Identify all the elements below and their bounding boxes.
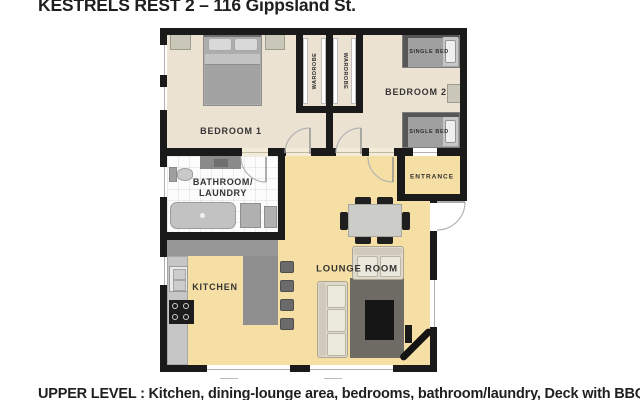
single-bed-top: SINGLE BED — [402, 33, 460, 68]
burner — [172, 303, 178, 309]
bar-stool-1 — [280, 261, 294, 273]
double-bed — [203, 31, 262, 106]
bed-foot — [403, 34, 408, 67]
dryer — [264, 206, 277, 228]
kitchen-counter-top — [167, 240, 278, 256]
threshold-line — [369, 152, 394, 153]
dining-table — [348, 204, 402, 237]
window-kitchen — [160, 257, 167, 285]
sofa-cushion — [327, 285, 346, 308]
opening-entrance-top — [413, 148, 437, 156]
wall-entrance-left — [397, 148, 405, 201]
window-glass-line — [164, 45, 165, 75]
window-bottom-right — [310, 365, 393, 372]
sofa-cushion — [327, 309, 346, 332]
cooktop — [169, 300, 194, 324]
bathroom-label-line1: BATHROOM/ — [193, 177, 253, 188]
doorway-bedroom1 — [286, 148, 311, 156]
wardrobe-right-door-a — [333, 38, 338, 104]
bathtub — [170, 202, 236, 229]
wardrobe-right-label: WARDROBE — [342, 53, 348, 90]
sofa-back — [319, 283, 326, 356]
burner — [183, 314, 189, 320]
wall-top — [160, 28, 467, 35]
sofa-cushion — [327, 333, 346, 356]
burner — [183, 303, 189, 309]
window-glass-line — [434, 280, 435, 327]
wall-right-upper — [460, 28, 467, 201]
bed-foot — [403, 113, 408, 147]
sofa-three-seat — [317, 281, 348, 358]
window-bottom-left — [207, 365, 290, 372]
bathtub-drain — [200, 213, 205, 218]
entrance-label: ENTRANCE — [410, 174, 454, 181]
wall-bottom — [160, 365, 437, 372]
wall-bathroom-right — [278, 148, 285, 240]
single-bed-bottom: SINGLE BED — [402, 112, 460, 148]
nightstand-bedroom2 — [447, 84, 461, 103]
nightstand-right — [265, 33, 285, 50]
washing-machine — [240, 203, 261, 228]
kitchen-sink — [169, 266, 188, 292]
pillow-left — [208, 38, 232, 51]
wall-under-wardrobe-left — [296, 106, 333, 113]
lounge-label: LOUNGE ROOM — [316, 264, 398, 275]
single-bed-bottom-label: SINGLE BED — [409, 129, 449, 135]
dimension-tick — [324, 378, 342, 379]
bathroom-label-line2: LAUNDRY — [193, 188, 253, 199]
window-glass-line — [413, 152, 437, 153]
bathroom-label: BATHROOM/ LAUNDRY — [193, 177, 253, 199]
window-glass-line — [164, 257, 165, 285]
nightstand-left — [170, 33, 191, 50]
sink-bowl-top — [173, 269, 186, 280]
single-bed-top-label: SINGLE BED — [409, 49, 449, 55]
window-lounge-right — [430, 280, 437, 327]
bar-stool-2 — [280, 280, 294, 292]
bar-stool-4 — [280, 318, 294, 330]
toilet-cistern — [169, 167, 177, 182]
burner — [172, 314, 178, 320]
bed-blanket — [205, 64, 260, 104]
wall-entrance-bottom — [397, 194, 467, 201]
window-bathroom — [160, 167, 167, 197]
window-glass-line — [310, 369, 393, 370]
wall-wardrobe-right — [356, 28, 363, 113]
dining-chair — [355, 236, 371, 244]
dimension-tick — [220, 378, 238, 379]
threshold-line — [336, 152, 362, 153]
dining-chair — [340, 212, 348, 230]
doorway-bedroom2 — [336, 148, 362, 156]
bar-stool-3 — [280, 299, 294, 311]
window-bedroom1-a — [160, 45, 167, 75]
wardrobe-left-door-a — [303, 38, 308, 104]
vanity-basin — [214, 159, 228, 167]
toilet-bowl — [177, 168, 193, 181]
window-bedroom1-b — [160, 87, 167, 110]
wardrobe-left-label: WARDROBE — [312, 53, 318, 90]
pillow-right — [234, 38, 258, 51]
dining-chair — [402, 212, 410, 230]
wall-under-wardrobe-right — [333, 106, 363, 113]
footer-caption: UPPER LEVEL : Kitchen, dining-lounge are… — [38, 386, 640, 400]
bed-sheet-fold — [205, 54, 260, 64]
wall-tv-corner-stub — [405, 325, 412, 343]
threshold-line — [242, 152, 268, 153]
doorway-hall-lounge — [369, 148, 394, 156]
floorplan-page: KESTRELS REST 2 – 116 Gippsland St. BEDR… — [0, 0, 640, 400]
bathroom-vanity — [200, 156, 241, 169]
coffee-table — [365, 300, 394, 340]
doorway-bathroom — [242, 148, 268, 156]
sink-bowl-bottom — [173, 280, 186, 291]
front-door-opening — [430, 203, 437, 231]
kitchen-label: KITCHEN — [192, 282, 238, 292]
sofa-back — [354, 248, 402, 255]
window-glass-line — [164, 87, 165, 110]
floorplan: BEDROOM 1 WARDROBE WARDROBE SINGLE BED S… — [0, 0, 640, 400]
window-glass-line — [164, 167, 165, 197]
wall-wardrobe-middle — [326, 28, 333, 156]
wall-bathroom-kitchen — [160, 232, 285, 240]
wall-bedroom1-right — [296, 28, 303, 113]
bedroom1-label: BEDROOM 1 — [200, 126, 262, 136]
threshold-line — [286, 152, 311, 153]
wall-left — [160, 28, 167, 372]
bedroom2-label: BEDROOM 2 — [385, 87, 447, 97]
window-glass-line — [207, 369, 290, 370]
kitchen-island — [243, 256, 278, 325]
dining-chair — [377, 236, 393, 244]
